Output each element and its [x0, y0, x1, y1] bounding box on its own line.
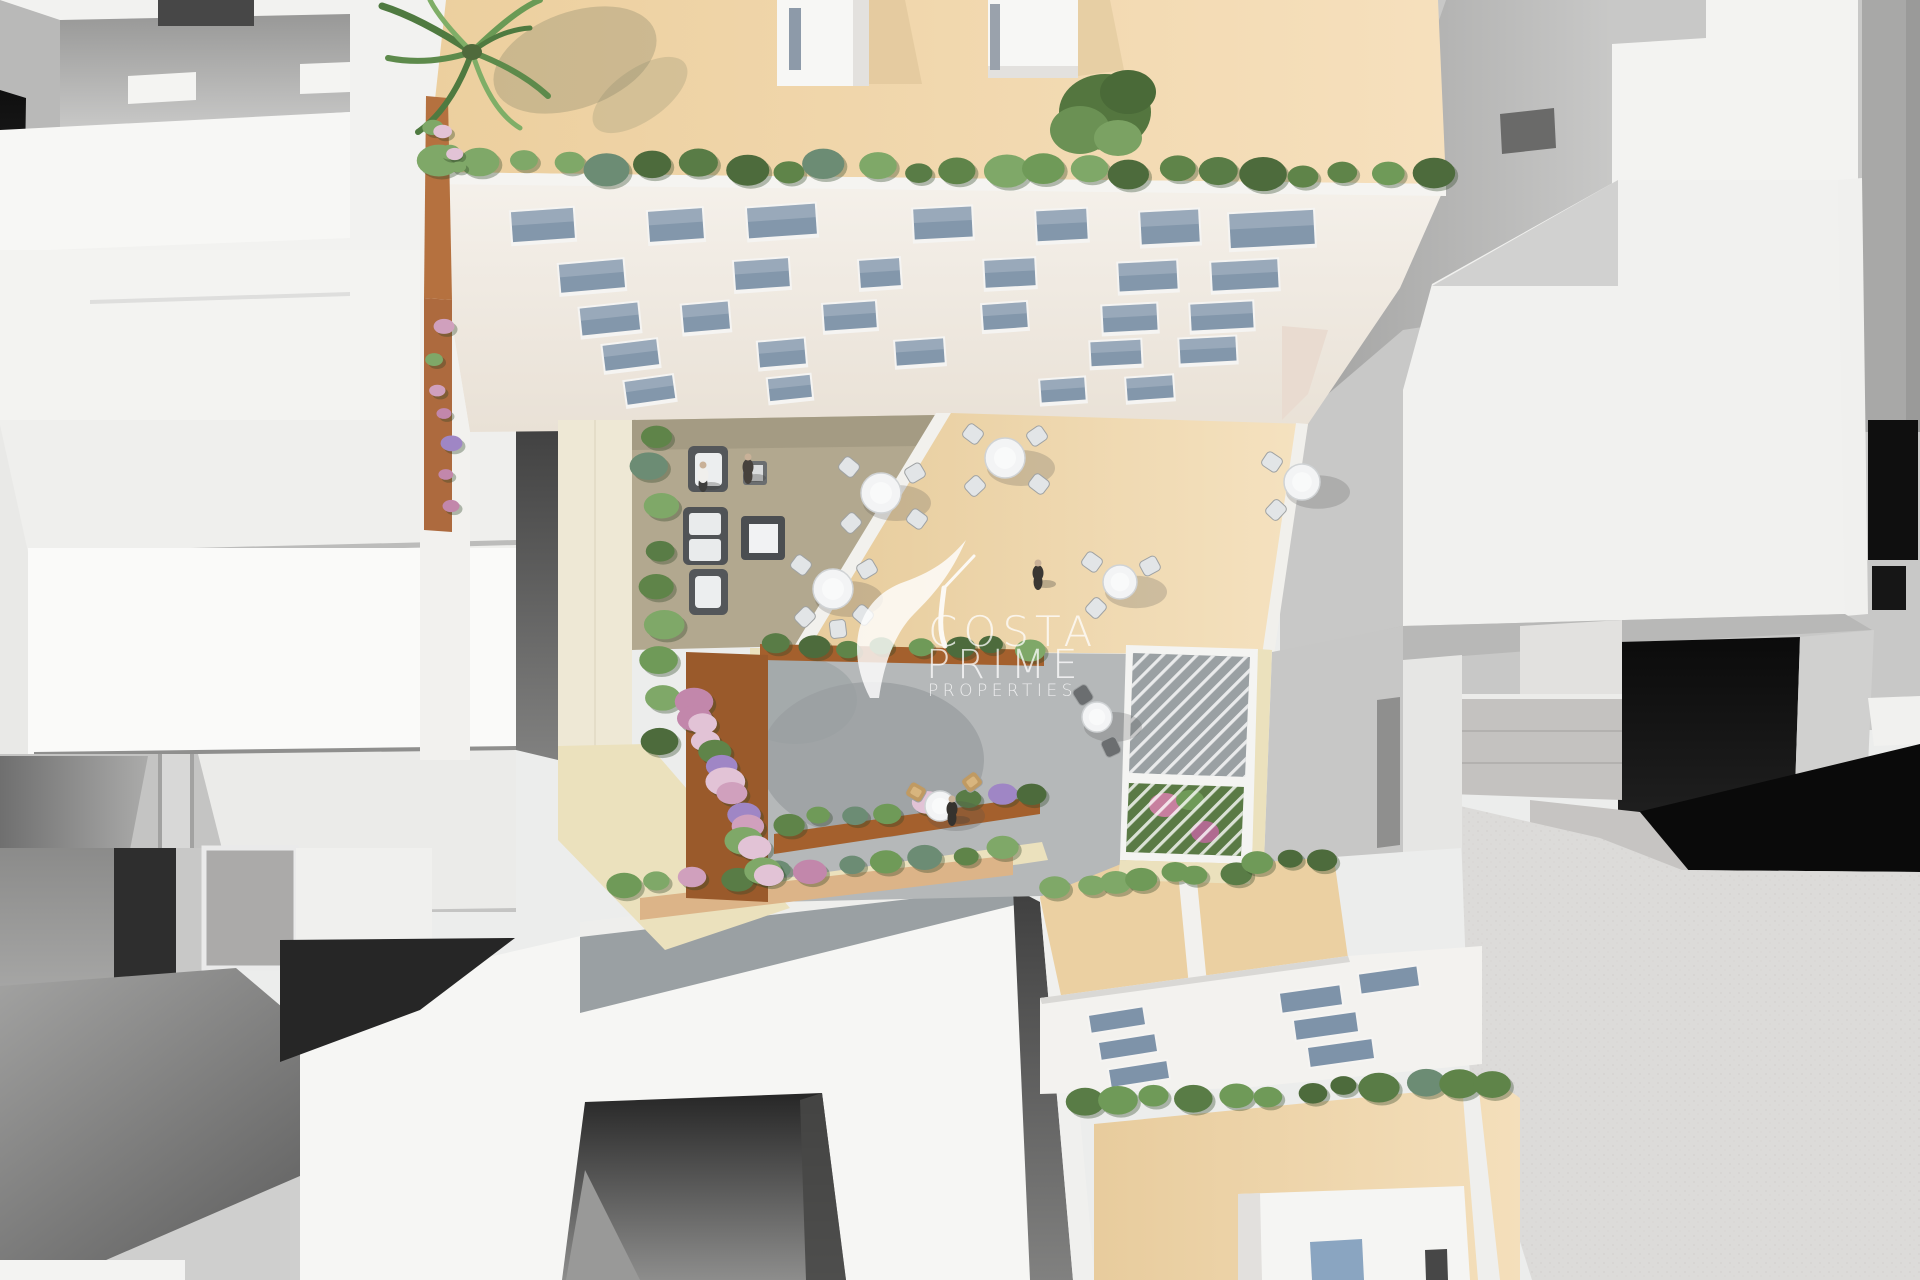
dark-doorway	[114, 848, 176, 986]
facade-window	[1088, 338, 1143, 371]
flower-blob	[441, 435, 463, 451]
hedge-blob	[1299, 1083, 1328, 1104]
hedge-blob	[1039, 876, 1070, 898]
hedge-blob	[954, 848, 979, 866]
hedge-blob	[1254, 1087, 1283, 1108]
hedge-blob	[678, 867, 707, 888]
pergola	[1118, 645, 1272, 884]
scene-svg: COSTA PRIME PROPERTIES	[0, 0, 1920, 1280]
hedge-blob	[1307, 849, 1337, 871]
hedge-blob	[510, 150, 538, 170]
hedge-blob	[773, 814, 804, 837]
hedge-blob	[1181, 866, 1207, 885]
flower-blob	[434, 319, 455, 334]
facade-window	[1227, 208, 1317, 253]
hedge-blob	[1199, 157, 1238, 185]
hedge-blob	[1330, 1076, 1356, 1095]
hedge-blob	[643, 871, 669, 890]
flower-blob	[443, 500, 460, 512]
hedge-blob	[1160, 155, 1196, 181]
facade-window	[509, 206, 577, 247]
dark-opening	[1868, 420, 1918, 560]
hedge-blob	[1372, 162, 1405, 186]
hedge-blob	[606, 873, 641, 898]
hedge-blob	[639, 646, 678, 674]
hedge-blob	[793, 860, 827, 884]
hedge-blob	[1413, 158, 1456, 189]
facade-window	[646, 206, 706, 246]
hedge-blob	[1358, 1073, 1399, 1103]
flower-blob	[425, 353, 443, 366]
hedge-blob	[1474, 1071, 1511, 1098]
flower-blob	[436, 408, 451, 419]
facade-window	[982, 256, 1038, 292]
flower-blob	[754, 864, 784, 886]
concrete-block	[1450, 698, 1622, 800]
hedge-blob	[1017, 784, 1047, 806]
facade-window	[680, 299, 733, 336]
flower-blob	[716, 782, 747, 804]
flower-blob	[738, 836, 771, 860]
facade-window	[1188, 299, 1256, 334]
hedge-blob	[726, 155, 769, 186]
flower-blob	[433, 125, 452, 138]
hedge-blob	[644, 493, 679, 518]
street-slot	[516, 416, 558, 760]
hedge-blob	[839, 856, 865, 875]
facade-window	[577, 300, 642, 339]
hedge-blob	[799, 635, 831, 658]
facade-window	[1034, 207, 1090, 246]
glazing	[1310, 1239, 1364, 1280]
facade-window	[766, 373, 815, 406]
hedge-blob	[641, 426, 672, 448]
hedge-blob	[1071, 155, 1109, 182]
hedge-blob	[555, 152, 585, 174]
hedge-blob	[1022, 153, 1065, 184]
distant-opening	[1500, 108, 1556, 154]
dark-notch	[158, 0, 254, 26]
facade-window	[821, 299, 879, 335]
hedge-blob	[1278, 850, 1303, 868]
facade-window	[756, 336, 809, 371]
flower-blob	[438, 469, 453, 480]
flower-blob	[451, 161, 466, 172]
facade-window	[1177, 334, 1238, 367]
watermark-line3: PROPERTIES	[928, 681, 1077, 701]
hedge-blob	[1327, 162, 1357, 183]
hedge-blob	[1108, 160, 1149, 190]
hedge-blob	[1239, 157, 1287, 191]
facade-window	[980, 300, 1030, 334]
hedge-blob	[1288, 165, 1319, 187]
hedge-blob	[806, 807, 829, 824]
hedge-blob	[679, 149, 718, 177]
facade-window	[1138, 207, 1202, 248]
hedge-blob	[1125, 868, 1157, 891]
facade-window	[1124, 373, 1176, 404]
hedge-blob	[905, 163, 932, 183]
hedge-blob	[859, 152, 897, 179]
hedge-blob	[645, 685, 680, 710]
dark-opening	[1872, 566, 1906, 610]
hedge-blob	[1219, 1083, 1253, 1108]
hedge-blob	[1241, 851, 1273, 874]
hedge-blob	[802, 149, 844, 179]
hedge-blob	[873, 804, 901, 824]
hedge-blob	[773, 161, 804, 183]
facade-window	[1038, 375, 1088, 406]
chair	[829, 619, 847, 639]
hedge-blob	[1098, 1086, 1138, 1115]
hedge-blob	[644, 610, 685, 639]
flower-blob	[429, 385, 445, 397]
facade-window	[1116, 258, 1180, 295]
hedge-blob	[584, 153, 630, 186]
hedge-blob	[630, 452, 668, 480]
hedge-blob	[842, 806, 868, 825]
facade-window	[857, 256, 903, 292]
hedge-blob	[1174, 1085, 1213, 1113]
hedge-blob	[639, 574, 674, 599]
hedge-blob	[907, 845, 942, 870]
hedge-blob	[641, 728, 679, 755]
facade-window	[557, 257, 628, 297]
facade-window	[1100, 302, 1160, 337]
facade-window	[732, 256, 792, 294]
hedge-blob	[762, 633, 790, 653]
facade-window	[893, 336, 947, 370]
hedge-blob	[870, 850, 902, 873]
facade-window	[745, 202, 819, 243]
hedge-blob	[836, 641, 860, 658]
facade-window	[911, 204, 975, 243]
aerial-property-render: COSTA PRIME PROPERTIES	[0, 0, 1920, 1280]
hedge-blob	[988, 783, 1018, 804]
flower-blob	[446, 148, 463, 160]
hedge-blob	[1138, 1085, 1168, 1107]
hedge-blob	[938, 157, 975, 184]
hedge-blob	[987, 836, 1019, 859]
hedge-blob	[646, 541, 675, 562]
facade-window	[1209, 257, 1281, 295]
hedge-blob	[633, 151, 671, 179]
